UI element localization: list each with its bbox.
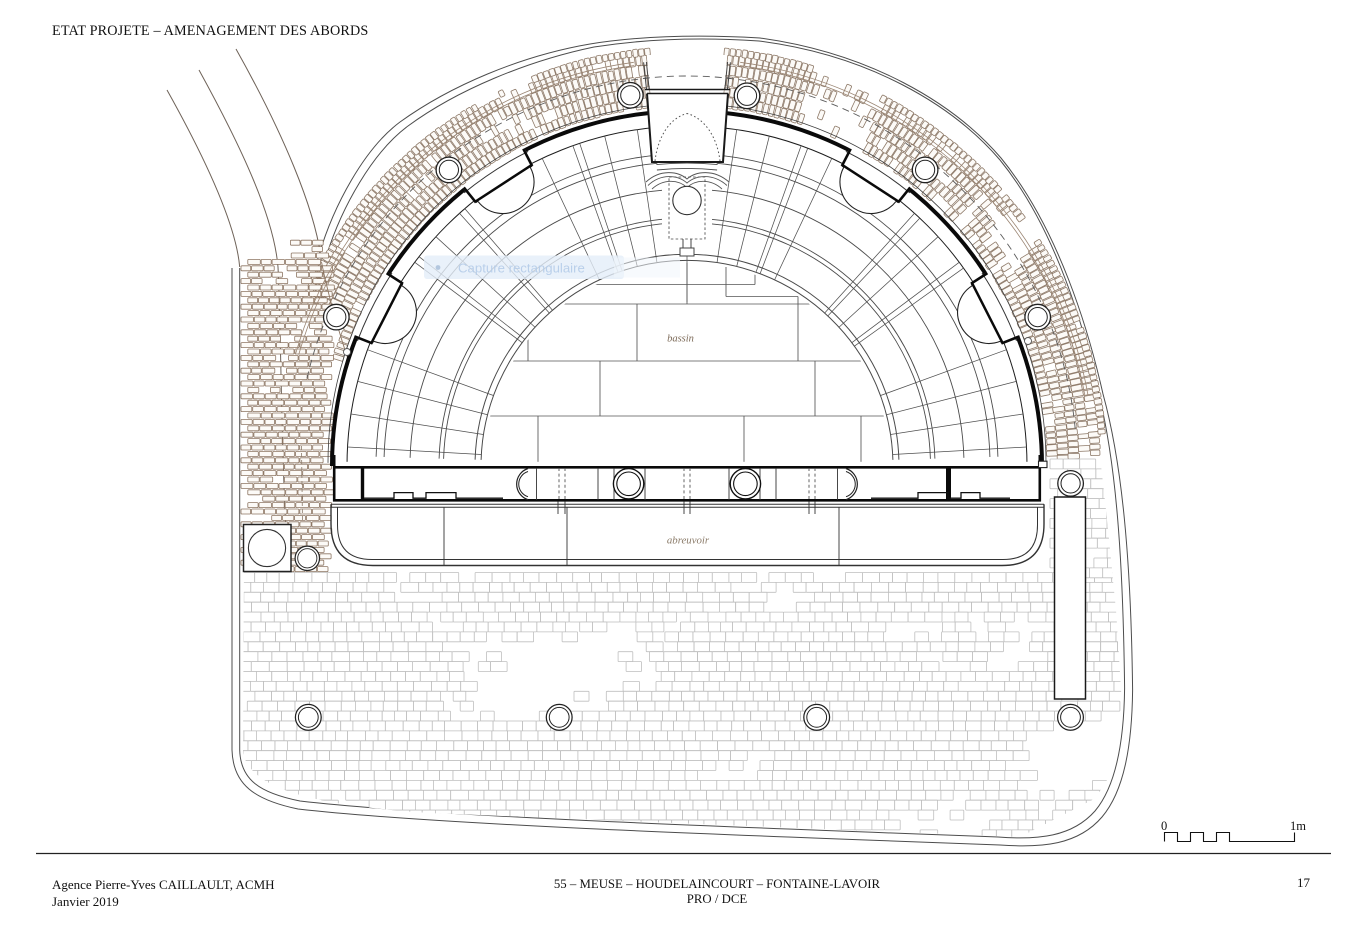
svg-text:17: 17 [1297, 875, 1311, 890]
svg-text:1m: 1m [1290, 819, 1306, 833]
svg-text:PRO / DCE: PRO / DCE [687, 892, 748, 906]
svg-text:bassin: bassin [667, 334, 694, 345]
svg-text:55 – MEUSE – HOUDELAINCOURT –: 55 – MEUSE – HOUDELAINCOURT – FONTAINE-L… [554, 877, 881, 891]
svg-text:abreuvoir: abreuvoir [667, 535, 710, 547]
svg-text:Capture rectangulaire: Capture rectangulaire [458, 261, 585, 276]
svg-text:ETAT PROJETE – AMENAGEMENT DES: ETAT PROJETE – AMENAGEMENT DES ABORDS [52, 23, 368, 39]
svg-text:0: 0 [1161, 819, 1167, 833]
svg-text:Janvier 2019: Janvier 2019 [52, 894, 119, 909]
svg-text:Agence Pierre-Yves CAILLAULT,: Agence Pierre-Yves CAILLAULT, ACMH [52, 877, 275, 892]
